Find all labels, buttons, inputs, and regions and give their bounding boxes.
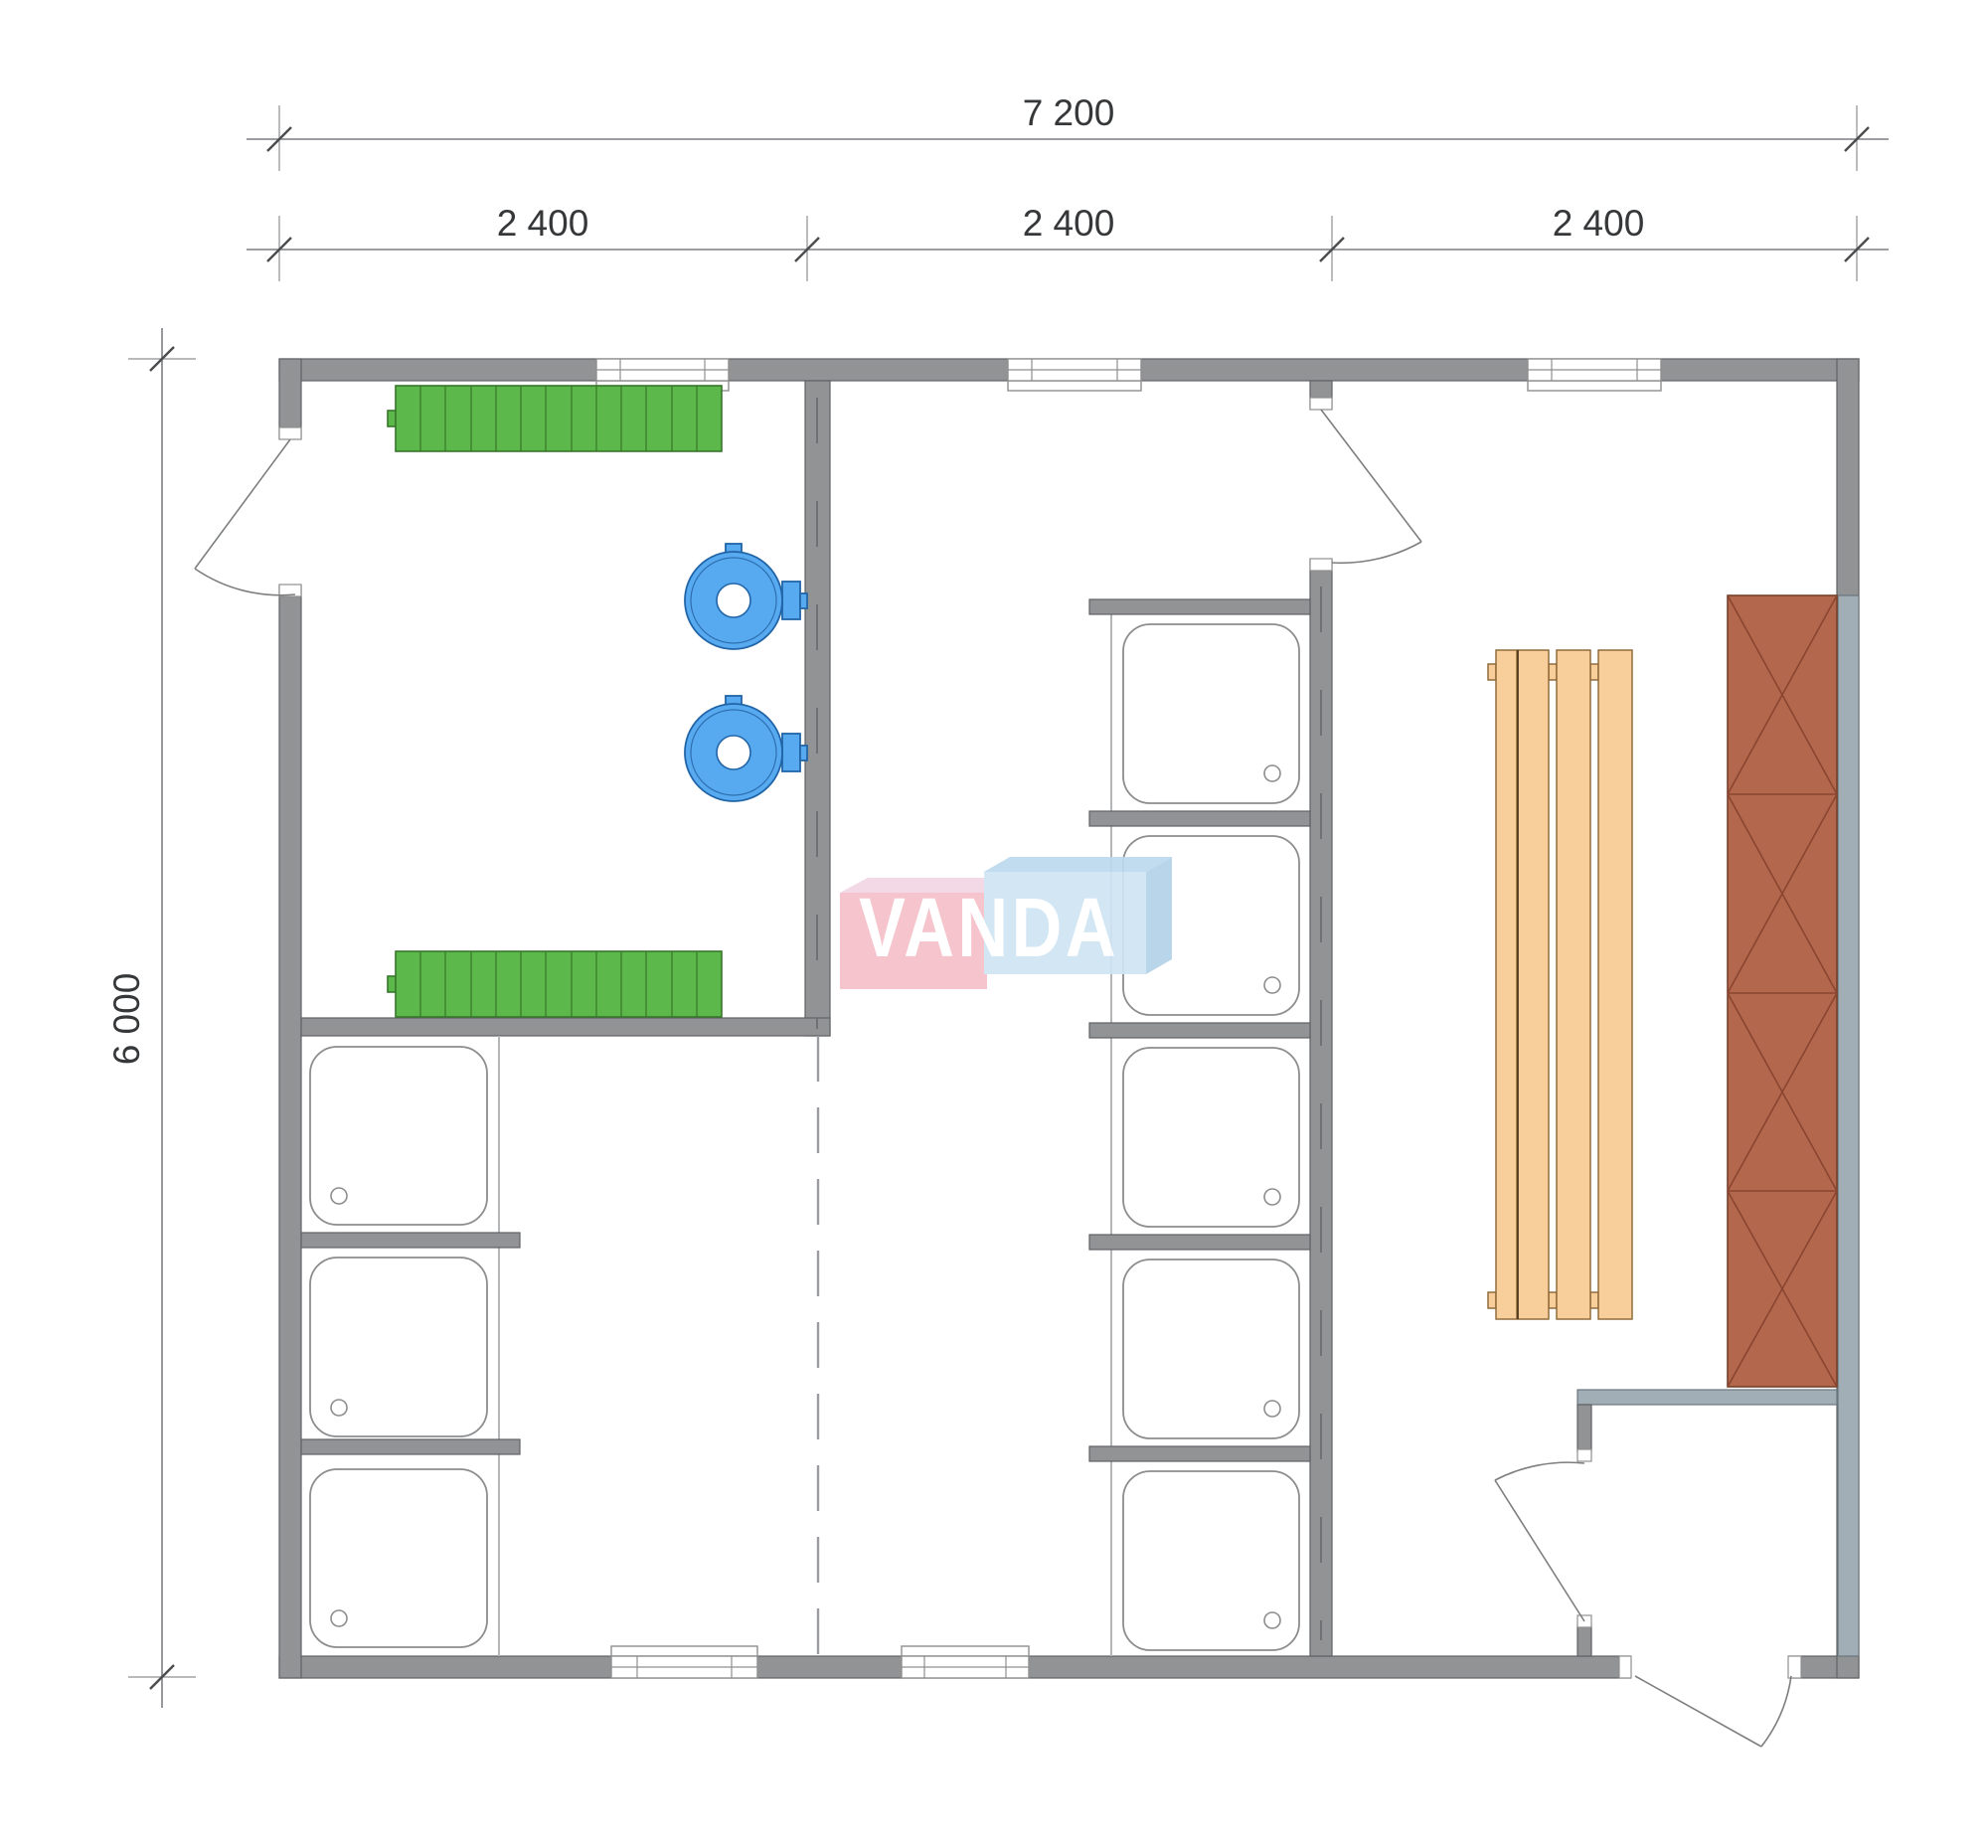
shower-tray bbox=[1123, 1471, 1299, 1650]
door-exterior-left bbox=[195, 427, 302, 596]
wall-vestibule-left-upper bbox=[1577, 1405, 1591, 1451]
dimension-label-overall-width: 7 200 bbox=[1023, 92, 1115, 133]
dimension-overall-depth: 6 000 bbox=[106, 328, 196, 1708]
dimension-label-bay-3: 2 400 bbox=[1553, 203, 1645, 244]
floor-plan-drawing: 7 200 2 400 2 400 2 400 6 000 bbox=[0, 0, 1988, 1848]
slatted-bench-bottom bbox=[388, 951, 722, 1017]
window-top-3 bbox=[1528, 359, 1661, 391]
dimension-label-overall-depth: 6 000 bbox=[106, 973, 147, 1066]
dimension-bays: 2 400 2 400 2 400 bbox=[247, 203, 1889, 281]
window-bottom-1 bbox=[611, 1646, 757, 1678]
sauna-bench bbox=[1488, 650, 1632, 1319]
shower-tray bbox=[310, 1469, 487, 1647]
shower-partition-mid-4 bbox=[1089, 1235, 1310, 1250]
shower-tray bbox=[1123, 624, 1299, 803]
wall-right-sauna-section bbox=[1838, 595, 1859, 1656]
shower-cubicles-left-column bbox=[301, 1036, 520, 1656]
floor-plan-page: 7 200 2 400 2 400 2 400 6 000 bbox=[0, 0, 1988, 1848]
vanda-watermark-logo: VANDA bbox=[840, 857, 1172, 989]
wall-vestibule-top bbox=[1577, 1390, 1837, 1405]
water-tank-2 bbox=[685, 696, 807, 801]
wall-washroom-bottom bbox=[301, 1018, 830, 1036]
shower-partition-mid-5 bbox=[1089, 1446, 1310, 1461]
shower-partition-left-1 bbox=[301, 1233, 520, 1248]
shower-tray bbox=[310, 1047, 487, 1225]
dimension-label-bay-1: 2 400 bbox=[497, 203, 589, 244]
door-vestibule bbox=[1495, 1449, 1592, 1627]
dimension-overall-width: 7 200 bbox=[247, 92, 1889, 171]
water-tank-1 bbox=[685, 544, 807, 649]
shower-partition-mid-2 bbox=[1089, 811, 1310, 826]
shower-cubicles-middle-column bbox=[1089, 599, 1310, 1656]
shower-tray bbox=[310, 1258, 487, 1436]
window-bottom-2 bbox=[902, 1646, 1029, 1678]
door-exterior-bottom bbox=[1619, 1655, 1801, 1747]
shower-partition-mid-1 bbox=[1089, 599, 1310, 614]
shower-tray bbox=[1123, 1260, 1299, 1438]
sauna-stove bbox=[1728, 595, 1837, 1387]
logo-blue-box-top bbox=[984, 857, 1172, 872]
shower-tray bbox=[1123, 1048, 1299, 1227]
wall-vestibule-left-lower bbox=[1577, 1625, 1591, 1656]
door-sauna-room bbox=[1309, 398, 1421, 571]
dimension-label-bay-2: 2 400 bbox=[1023, 203, 1115, 244]
window-top-2 bbox=[1008, 359, 1141, 391]
slatted-bench-top bbox=[388, 386, 722, 451]
logo-text: VANDA bbox=[859, 881, 1119, 974]
logo-blue-box-side bbox=[1146, 857, 1172, 974]
shower-partition-mid-3 bbox=[1089, 1023, 1310, 1038]
shower-partition-left-2 bbox=[301, 1439, 520, 1454]
